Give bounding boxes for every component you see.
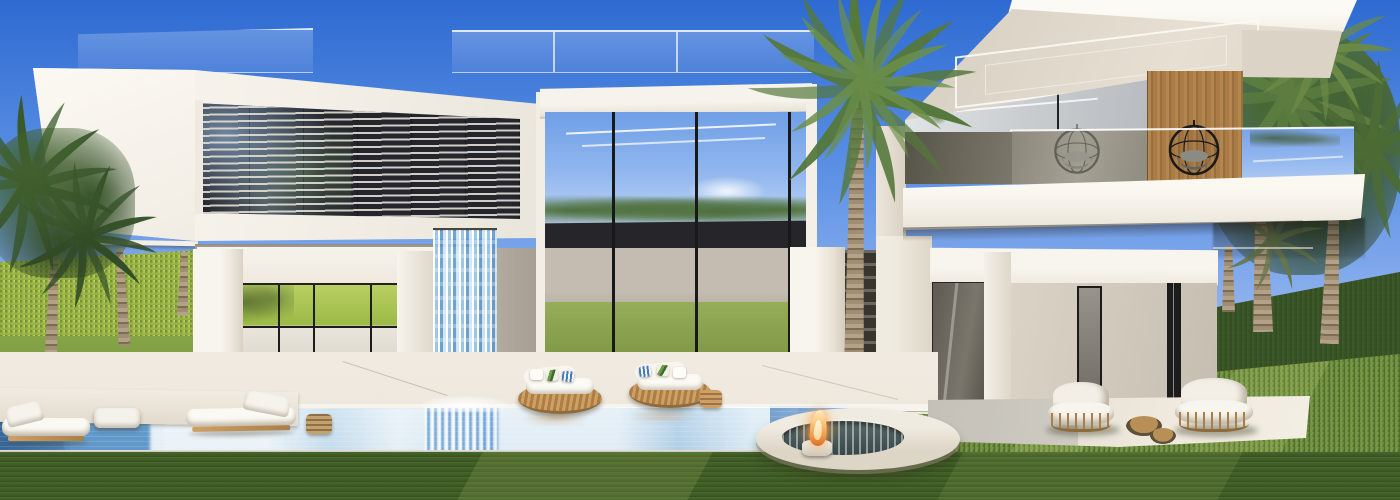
coffee-table xyxy=(1150,428,1176,444)
foliage-mass-left xyxy=(0,128,135,278)
corner-pillar xyxy=(984,252,1011,407)
atrium-mullion xyxy=(612,112,615,392)
waterfall-splash xyxy=(420,396,510,412)
glass-streak xyxy=(943,283,959,405)
glass-hedge-reflection xyxy=(545,302,807,358)
sun-streak xyxy=(457,452,713,500)
louver-screen xyxy=(195,100,520,220)
poolside-table xyxy=(94,408,140,428)
patio-armchair xyxy=(1175,378,1253,432)
garden-wall-sill xyxy=(1213,247,1313,249)
wood-side-stool xyxy=(700,390,722,408)
right-side-return-wall xyxy=(1242,29,1343,78)
villa-exterior-scene: Photorealistic architectural rendering o… xyxy=(0,0,1400,500)
atrium-jamb-left xyxy=(536,92,545,392)
flame-core xyxy=(813,420,822,440)
patterned-pillow xyxy=(638,365,651,377)
foreground-lawn xyxy=(0,452,1400,500)
white-pillow xyxy=(673,367,686,378)
lounger-wood-base xyxy=(8,436,84,441)
botanical-pillow xyxy=(545,369,558,382)
louver-slats xyxy=(195,100,520,220)
chaise-lounge xyxy=(186,387,297,437)
atrium-mullion xyxy=(695,112,698,392)
sunken-spa-firepit xyxy=(756,408,960,470)
wood-side-stool xyxy=(306,414,332,434)
balustrade-sky-mirror xyxy=(1242,128,1354,178)
balustrade-mullion xyxy=(676,32,678,72)
corner-glass-doors xyxy=(932,282,988,406)
deck-seam xyxy=(343,361,448,396)
white-pillow xyxy=(530,369,543,380)
rattan-daybed xyxy=(516,366,604,414)
sun-streak xyxy=(937,452,1243,500)
deck-seam xyxy=(762,365,898,400)
mirror-streak xyxy=(1253,156,1343,163)
botanical-pillow xyxy=(657,364,670,376)
ground-floor-fascia xyxy=(930,248,1218,287)
patterned-pillow xyxy=(561,370,574,382)
armchair-wood-frame xyxy=(1179,412,1249,432)
egg-chair-reflection xyxy=(1050,124,1104,180)
balustrade-mullion xyxy=(553,32,555,72)
armchair-wood-frame xyxy=(1051,413,1110,432)
chaise-lounge xyxy=(2,394,90,446)
patio-armchair xyxy=(1048,382,1114,432)
glass-transom xyxy=(224,326,400,328)
mirror-frond-reflection xyxy=(1250,130,1340,150)
frame-highlight xyxy=(1173,283,1174,402)
roof-glass-balustrade-left xyxy=(78,28,313,73)
